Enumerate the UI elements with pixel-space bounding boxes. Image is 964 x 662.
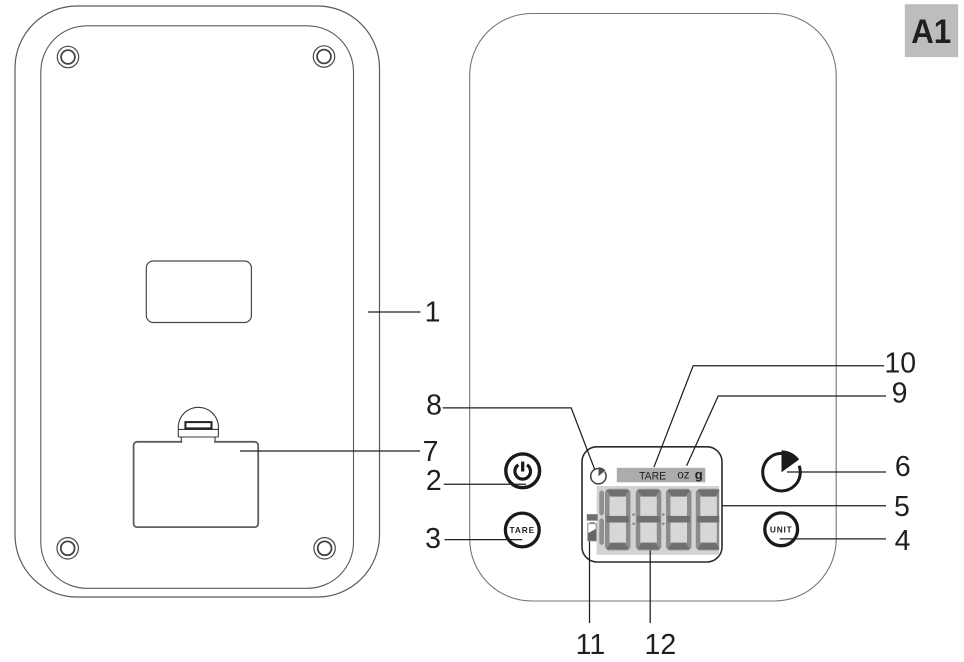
svg-text:g: g xyxy=(695,467,703,482)
svg-text:TARE: TARE xyxy=(510,525,536,535)
svg-text:5: 5 xyxy=(894,491,910,523)
svg-text:3: 3 xyxy=(425,523,441,555)
svg-text:8: 8 xyxy=(426,390,442,422)
svg-text:A1: A1 xyxy=(911,13,951,51)
svg-text:10: 10 xyxy=(884,347,916,379)
svg-text:7: 7 xyxy=(423,436,439,468)
svg-text:11: 11 xyxy=(576,629,606,661)
svg-text:2: 2 xyxy=(426,465,442,497)
svg-text:1: 1 xyxy=(425,296,441,328)
svg-text:UNIT: UNIT xyxy=(770,524,793,534)
svg-text:TARE: TARE xyxy=(639,470,666,482)
svg-text:oz: oz xyxy=(677,470,689,482)
svg-text:12: 12 xyxy=(645,629,677,661)
svg-text:9: 9 xyxy=(892,378,908,410)
svg-text:4: 4 xyxy=(895,525,911,557)
svg-text:6: 6 xyxy=(895,451,911,483)
